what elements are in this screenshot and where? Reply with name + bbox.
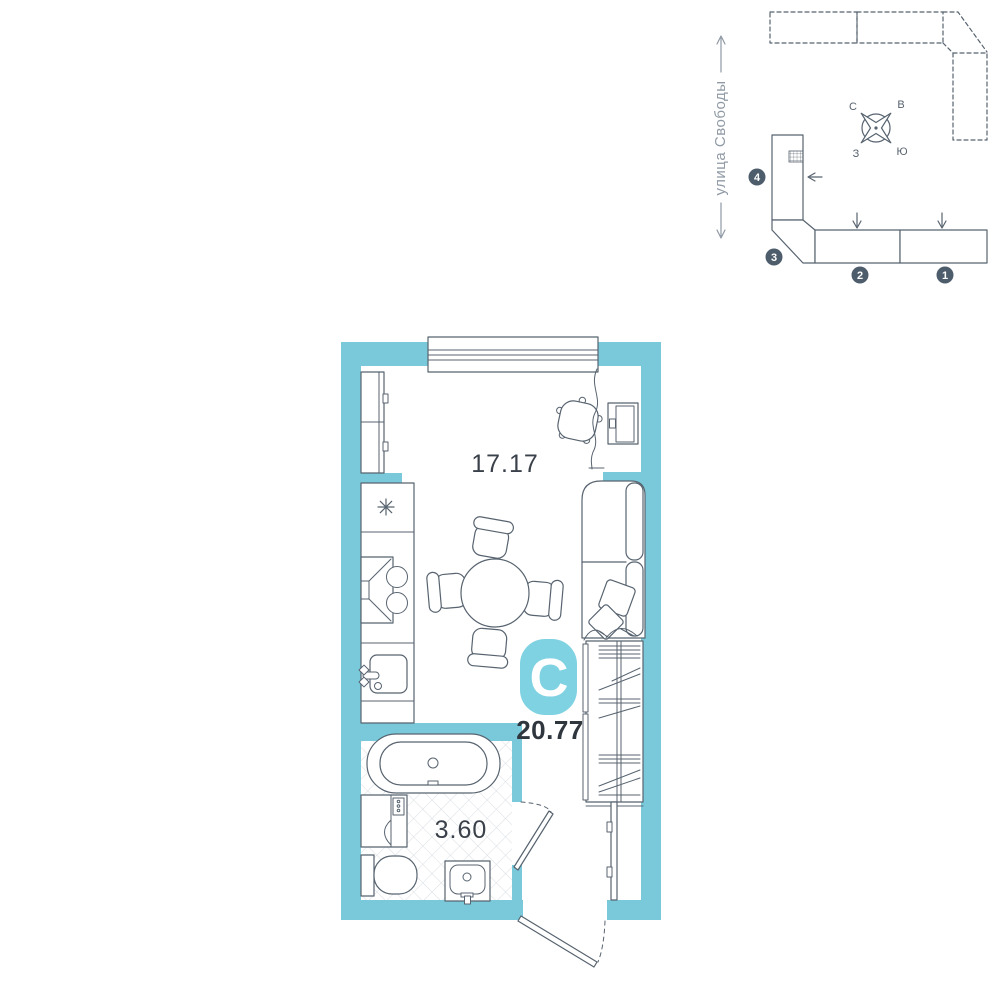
marker-1-number: 1 [942,270,948,282]
bed-unit [583,628,643,806]
unit-type-letter: С [530,648,569,708]
bathroom-door [514,802,553,870]
entry-arrow-building-2 [853,213,861,228]
compass-center-dot [874,126,877,129]
bathroom-sink [445,861,490,904]
compass-east-label: В [897,99,904,111]
entry-arrow-building-1 [938,213,946,228]
street-name-label: улица Свободы [712,80,729,195]
entry-door-leaf [518,916,597,967]
entry-arrow-building-4 [808,173,822,181]
desk-monitor [616,406,634,442]
toilet [361,855,417,896]
workplace [551,369,638,469]
floorplan-page: С В З Ю улица Свободы 1 2 [0,0,1000,1000]
partition-tick-1 [607,822,612,832]
bathroom-door-swing-arc [521,802,551,812]
plan-canvas: С В З Ю улица Свободы 1 2 [0,0,1000,1000]
window [428,337,598,372]
sink-faucet-stem [465,896,471,904]
building-marker-2: 2 [852,267,869,284]
entrance-arrows [808,173,946,228]
dining-table [461,559,529,627]
bed-side-rail-1 [583,644,588,712]
wall-left [341,342,361,920]
building-marker-1: 1 [937,267,954,284]
burner-1 [387,567,408,588]
entry-door [518,916,605,967]
bathtub [367,734,500,793]
building-1 [900,230,987,263]
washing-machine [361,795,407,847]
desk-knob [610,419,616,428]
unit-type-badge: С [520,639,577,715]
marker-2-number: 2 [857,270,863,282]
sofa-back-cushion-1 [626,483,643,560]
hallway-partition [607,802,617,900]
sofa [582,481,645,640]
floor-plan: 17.17 3.60 С 20.77 [341,337,661,967]
building-marker-4: 4 [749,169,766,186]
wardrobe-handle-bottom [383,442,388,451]
wall-kitchen-stub [361,473,402,483]
toilet-bowl [374,856,417,894]
ventilation-symbol [378,499,394,515]
street-arrow-down [717,203,725,238]
entry-door-swing-arc [598,921,605,962]
site-plan: С В З Ю улица Свободы 1 2 [712,12,987,284]
marker-3-number: 3 [771,252,777,264]
wall-bottom-right [607,900,661,920]
compass-south-label: Ю [896,146,907,158]
street: улица Свободы [712,36,729,238]
compass-rose: С В З Ю [849,99,908,160]
wall-bathroom-right-lower [512,865,522,900]
bathroom-door-leaf [514,811,553,870]
compass-west-label: З [853,148,860,160]
bathroom-area-label: 3.60 [435,816,488,844]
partition-tick-2 [607,867,612,877]
building-blocks [772,135,987,263]
building-marker-3: 3 [766,249,783,266]
compass-north-label: С [849,101,857,113]
kitchen-counter [359,483,414,723]
street-arrow-up [717,36,725,72]
bathtub-overflow [428,781,438,785]
total-area-label: 20.77 [516,715,584,745]
wardrobe [361,372,388,473]
marker-4-number: 4 [754,172,761,184]
toilet-tank [361,855,374,896]
dining-chair-north [468,516,514,560]
building-4-vent-hatch [789,151,803,162]
building-4 [772,135,803,220]
living-area-label: 17.17 [471,450,539,478]
dining-chair-south [467,627,510,668]
wall-bottom-left [341,900,523,920]
desk [608,403,638,444]
burner-2 [387,593,408,614]
building-2 [815,230,900,263]
wardrobe-handle-top [383,394,388,403]
